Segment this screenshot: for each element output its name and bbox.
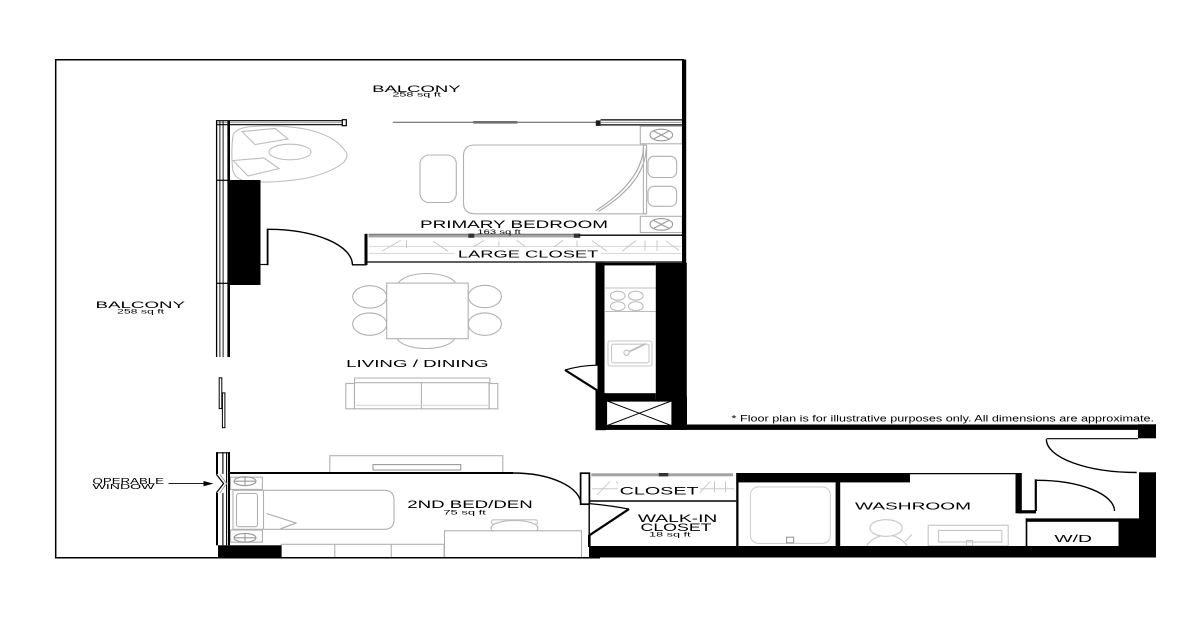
- svg-text:18 sq ft: 18 sq ft: [649, 532, 691, 539]
- svg-text:W/D: W/D: [1054, 534, 1092, 545]
- svg-text:LIVING / DINING: LIVING / DINING: [346, 359, 489, 370]
- svg-text:258 sq ft: 258 sq ft: [117, 309, 164, 316]
- svg-text:258 sq ft: 258 sq ft: [392, 91, 441, 98]
- svg-text:163 sq ft: 163 sq ft: [477, 229, 521, 236]
- svg-text:WASHROOM: WASHROOM: [855, 501, 971, 512]
- svg-text:* Floor plan is for illustrati: * Floor plan is for illustrative purpose…: [732, 414, 1155, 424]
- svg-text:CLOSET: CLOSET: [620, 485, 700, 497]
- svg-text:WINDOW: WINDOW: [93, 482, 155, 491]
- svg-text:LARGE CLOSET: LARGE CLOSET: [458, 250, 599, 261]
- svg-text:75 sq ft: 75 sq ft: [443, 509, 486, 516]
